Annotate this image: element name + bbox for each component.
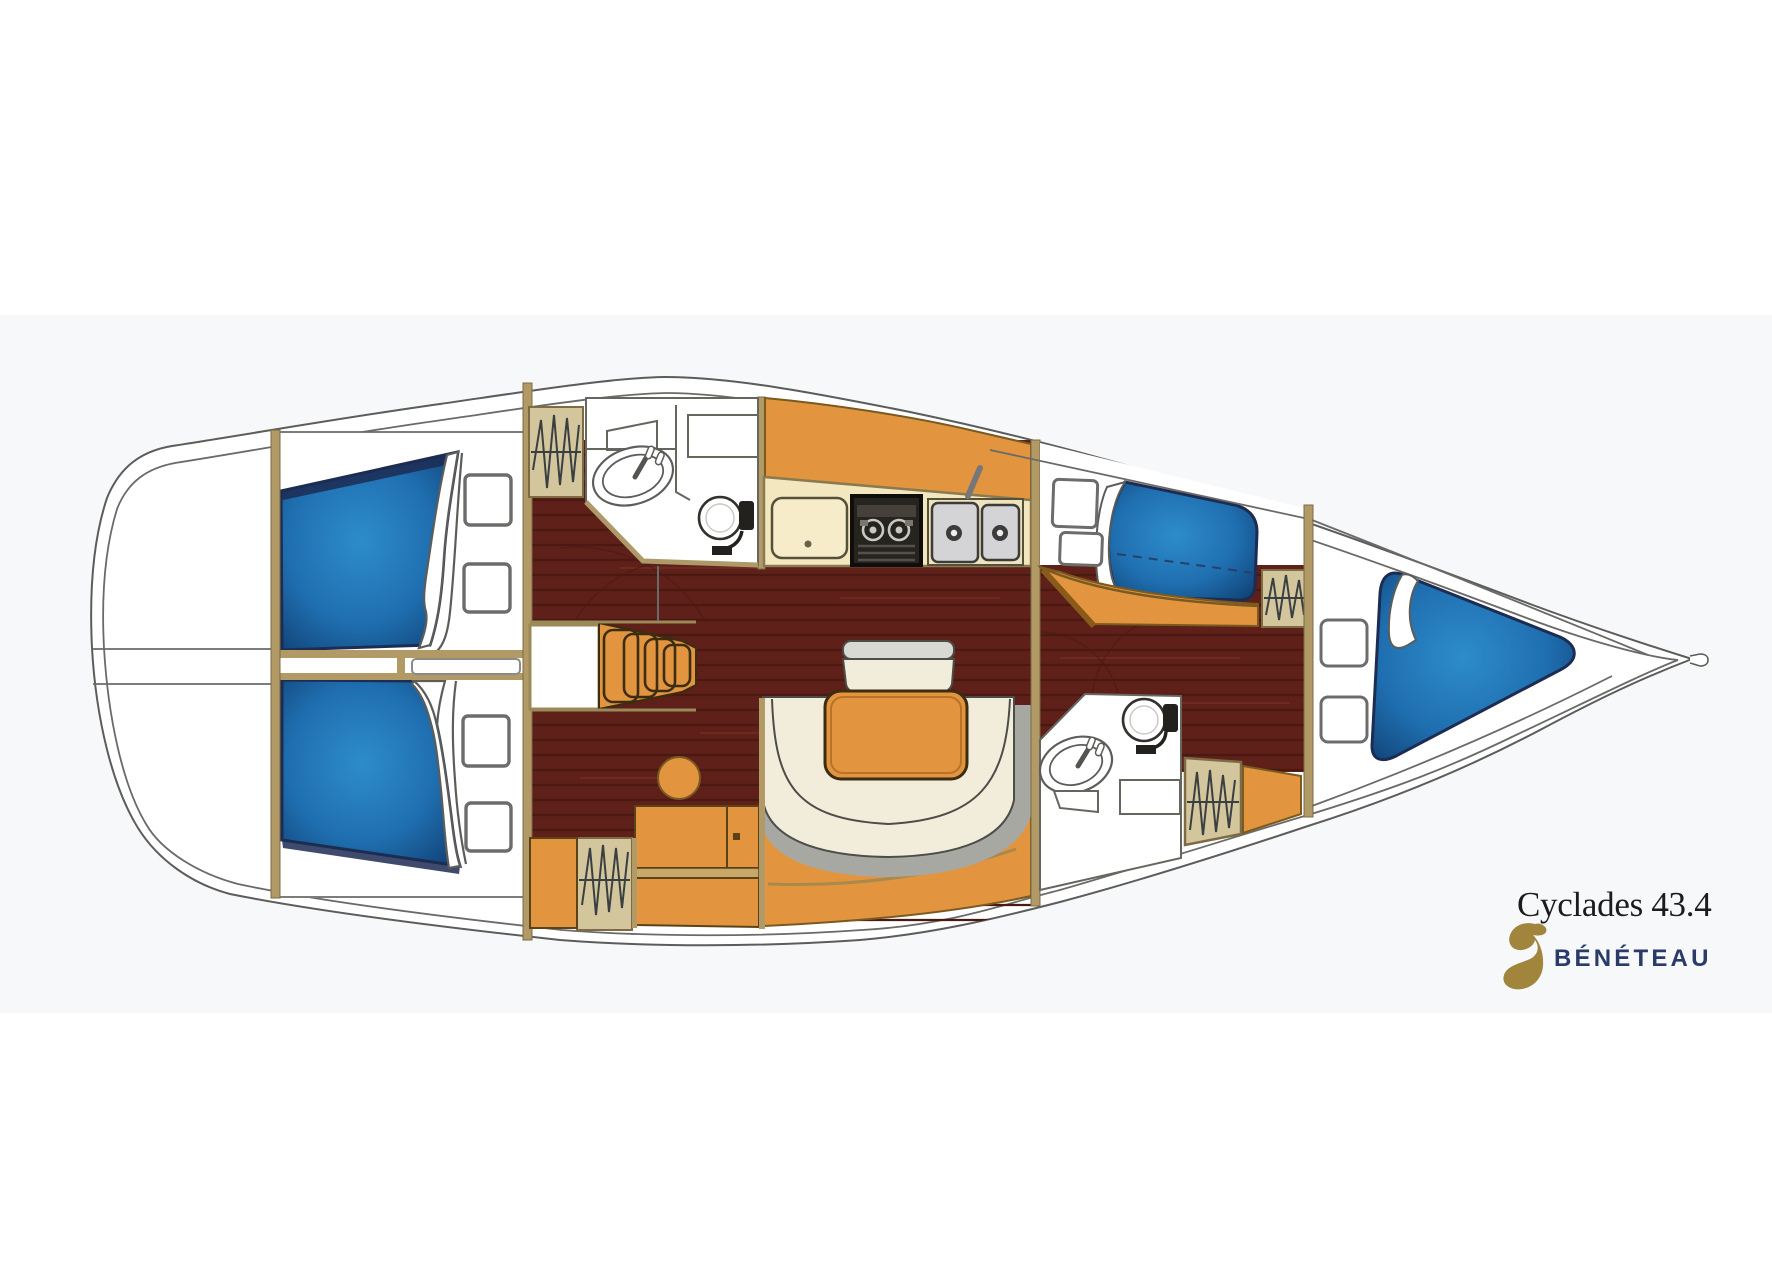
svg-text:BÉNÉTEAU: BÉNÉTEAU: [1554, 944, 1712, 972]
svg-text:Cyclades 43.4: Cyclades 43.4: [1517, 885, 1711, 924]
